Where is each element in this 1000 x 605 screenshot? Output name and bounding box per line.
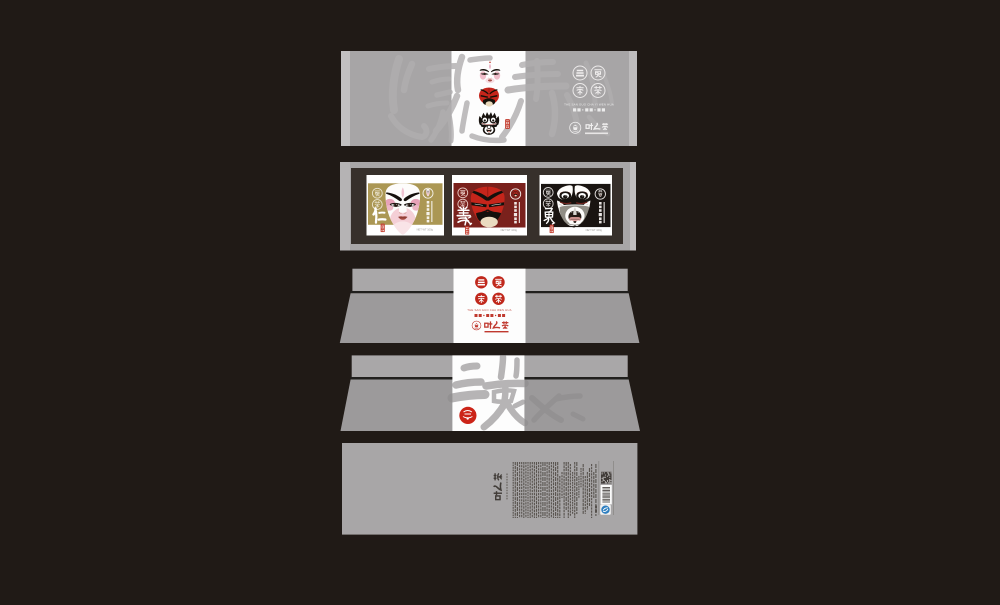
svg-text:THE SAN GUO CHA YI WEN HUA: THE SAN GUO CHA YI WEN HUA	[564, 103, 614, 107]
svg-text:NET WT 100g: NET WT 100g	[417, 228, 434, 232]
svg-text:THE SAN GUO CHA WEN HUA: THE SAN GUO CHA WEN HUA	[467, 308, 511, 312]
svg-text:NET WT 100g: NET WT 100g	[586, 228, 603, 232]
svg-text:NET WT 100g: NET WT 100g	[501, 228, 518, 232]
